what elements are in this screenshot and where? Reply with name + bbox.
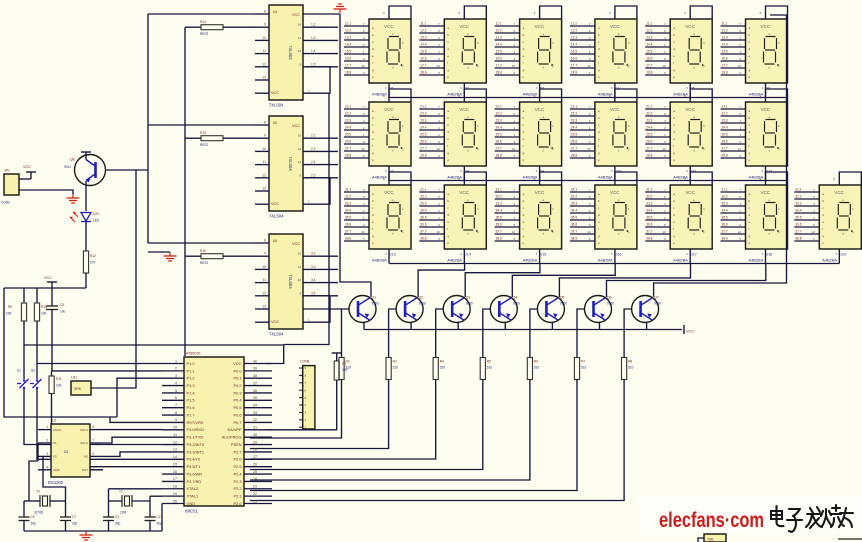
svg-text:23.3: 23.3 <box>345 119 351 123</box>
svg-text:4: 4 <box>175 381 177 385</box>
svg-text:33.3: 33.3 <box>795 202 801 206</box>
svg-text:VCC: VCC <box>459 24 469 29</box>
svg-text:26: 26 <box>253 462 257 466</box>
svg-text:10K: 10K <box>41 312 48 316</box>
svg-text:38.8: 38.8 <box>646 237 652 241</box>
svg-text:10: 10 <box>361 64 365 68</box>
svg-text:RES2: RES2 <box>200 143 209 147</box>
svg-text:28.8: 28.8 <box>571 154 577 158</box>
svg-text:C2: C2 <box>157 515 161 519</box>
svg-text:35.5: 35.5 <box>722 216 728 220</box>
svg-text:18.8: 18.8 <box>646 71 652 75</box>
svg-text:10: 10 <box>437 147 441 151</box>
svg-text:P3.4/T0: P3.4/T0 <box>187 457 201 462</box>
svg-text:10: 10 <box>587 147 591 151</box>
svg-text:10: 10 <box>738 147 742 151</box>
svg-text:3.4: 3.4 <box>311 278 316 282</box>
svg-text:32.2: 32.2 <box>571 195 577 199</box>
svg-text:22.2: 22.2 <box>420 112 426 116</box>
svg-text:2: 2 <box>46 439 48 443</box>
svg-text:13.3: 13.3 <box>722 36 728 40</box>
svg-text:3.3: 3.3 <box>311 265 316 269</box>
svg-text:14.4: 14.4 <box>420 43 426 47</box>
svg-text:P3.5/T1: P3.5/T1 <box>187 464 201 469</box>
svg-text:32.2: 32.2 <box>420 195 426 199</box>
svg-text:32768: 32768 <box>34 511 43 515</box>
svg-text:2.3: 2.3 <box>311 147 316 151</box>
svg-text:26.6: 26.6 <box>345 140 351 144</box>
svg-text:31.1: 31.1 <box>646 188 652 192</box>
svg-text:VCC: VCC <box>685 190 695 195</box>
svg-text:21.1: 21.1 <box>722 105 728 109</box>
svg-text:10: 10 <box>512 230 516 234</box>
svg-text:VCC: VCC <box>271 202 279 206</box>
svg-text:74LS04: 74LS04 <box>288 156 293 171</box>
svg-text:89C51: 89C51 <box>185 509 198 514</box>
svg-text:f: f <box>447 227 448 231</box>
svg-text:P2.6: P2.6 <box>233 457 241 462</box>
svg-text:23.3: 23.3 <box>571 119 577 123</box>
svg-text:VCC: VCC <box>535 24 545 29</box>
svg-text:28.8: 28.8 <box>420 154 426 158</box>
svg-text:R14: R14 <box>200 20 206 24</box>
svg-text:33.3: 33.3 <box>420 202 426 206</box>
svg-text:35.5: 35.5 <box>646 216 652 220</box>
svg-text:510: 510 <box>628 366 634 370</box>
svg-text:510: 510 <box>440 366 446 370</box>
svg-text:10K: 10K <box>342 368 349 372</box>
svg-text:37.7: 37.7 <box>496 230 502 234</box>
svg-text:P1.3: P1.3 <box>187 383 195 388</box>
svg-text:A4B2BA: A4B2BA <box>673 175 688 180</box>
svg-text:17.7: 17.7 <box>345 64 351 68</box>
svg-text:16: 16 <box>298 252 302 256</box>
svg-text:33.3: 33.3 <box>722 202 728 206</box>
svg-text:27.7: 27.7 <box>345 147 351 151</box>
svg-text:21: 21 <box>253 499 257 503</box>
svg-text:3: 3 <box>46 452 48 456</box>
svg-text:22.2: 22.2 <box>496 112 502 116</box>
svg-text:12: 12 <box>298 160 302 164</box>
svg-text:36.6: 36.6 <box>795 223 801 227</box>
svg-text:21.1: 21.1 <box>496 105 502 109</box>
svg-text:21.1: 21.1 <box>420 105 426 109</box>
svg-text:17.7: 17.7 <box>646 64 652 68</box>
svg-text:38.8: 38.8 <box>722 237 728 241</box>
svg-text:21.1: 21.1 <box>345 105 351 109</box>
svg-text:A4B2BA: A4B2BA <box>673 92 688 97</box>
svg-text:37: 37 <box>253 381 257 385</box>
svg-text:270: 270 <box>90 261 96 265</box>
svg-text:16: 16 <box>298 23 302 27</box>
svg-text:34.4: 34.4 <box>722 209 728 213</box>
svg-text:13: 13 <box>262 187 266 191</box>
svg-text:22.2: 22.2 <box>722 112 728 116</box>
svg-text:10K: 10K <box>6 312 13 316</box>
svg-text:10: 10 <box>262 265 266 269</box>
svg-text:17.7: 17.7 <box>420 64 426 68</box>
svg-text:31.1: 31.1 <box>496 188 502 192</box>
svg-text:26.6: 26.6 <box>420 140 426 144</box>
svg-text:9012: 9012 <box>64 165 71 169</box>
svg-text:9550: 9550 <box>560 302 567 306</box>
svg-text:SCLK: SCLK <box>80 441 88 445</box>
svg-text:28.8: 28.8 <box>345 154 351 158</box>
svg-text:18.8: 18.8 <box>571 71 577 75</box>
svg-text:25.5: 25.5 <box>571 133 577 137</box>
svg-text:17.7: 17.7 <box>571 64 577 68</box>
svg-text:25.5: 25.5 <box>345 133 351 137</box>
svg-text:CON2: CON2 <box>1 201 10 205</box>
svg-text:32.2: 32.2 <box>795 195 801 199</box>
svg-text:DS1302: DS1302 <box>48 480 64 485</box>
svg-text:U2: U2 <box>64 450 68 454</box>
svg-text:30p: 30p <box>115 522 121 526</box>
svg-text:D18: D18 <box>766 253 773 257</box>
svg-text:25.5: 25.5 <box>496 133 502 137</box>
svg-text:VCC: VCC <box>23 165 31 169</box>
svg-text:P2.4: P2.4 <box>233 471 242 476</box>
svg-text:17.7: 17.7 <box>722 64 728 68</box>
svg-text:VCC: VCC <box>610 24 620 29</box>
svg-text:3.5: 3.5 <box>311 291 316 295</box>
svg-text:6: 6 <box>93 452 95 456</box>
svg-text:30p: 30p <box>72 522 78 526</box>
svg-text:VCC: VCC <box>292 242 300 246</box>
svg-text:VCC1: VCC1 <box>80 428 88 432</box>
svg-text:8: 8 <box>93 425 95 429</box>
svg-text:10: 10 <box>173 426 177 430</box>
svg-text:P1.1: P1.1 <box>187 368 195 373</box>
svg-text:34.4: 34.4 <box>345 209 351 213</box>
svg-text:CON8: CON8 <box>300 360 310 364</box>
svg-text:16.6: 16.6 <box>496 57 502 61</box>
svg-text:VCC: VCC <box>535 190 545 195</box>
svg-text:P3.7/RD: P3.7/RD <box>187 479 202 484</box>
svg-text:1: 1 <box>175 359 177 363</box>
svg-text:19: 19 <box>173 492 177 496</box>
svg-text:D20: D20 <box>93 212 99 216</box>
svg-text:10: 10 <box>512 147 516 151</box>
svg-text:34.4: 34.4 <box>420 209 426 213</box>
svg-text:12M: 12M <box>120 511 127 515</box>
svg-text:33.3: 33.3 <box>571 202 577 206</box>
svg-text:f: f <box>447 61 448 65</box>
svg-text:510: 510 <box>393 366 399 370</box>
svg-text:9: 9 <box>264 134 266 138</box>
svg-text:15.5: 15.5 <box>722 50 728 54</box>
svg-text:12: 12 <box>173 440 177 444</box>
svg-text:21.1: 21.1 <box>571 105 577 109</box>
svg-text:A4B2BA: A4B2BA <box>523 258 538 263</box>
svg-text:35.5: 35.5 <box>420 216 426 220</box>
svg-text:VCC: VCC <box>685 24 695 29</box>
svg-text:12: 12 <box>262 291 266 295</box>
svg-text:R7: R7 <box>581 360 585 364</box>
svg-text:27: 27 <box>253 455 257 459</box>
svg-text:11: 11 <box>262 278 266 282</box>
svg-text:C7: C7 <box>72 515 76 519</box>
svg-text:P0.3: P0.3 <box>233 390 241 395</box>
svg-text:4: 4 <box>46 465 48 469</box>
svg-text:12: 12 <box>298 49 302 53</box>
svg-text:10K: 10K <box>56 384 63 388</box>
svg-text:36.6: 36.6 <box>646 223 652 227</box>
svg-text:23.3: 23.3 <box>496 119 502 123</box>
svg-text:18.8: 18.8 <box>420 71 426 75</box>
svg-text:S1: S1 <box>17 369 21 373</box>
svg-text:VCC: VCC <box>271 91 279 95</box>
svg-text:11.1: 11.1 <box>722 22 728 26</box>
svg-text:I/O: I/O <box>84 455 89 459</box>
svg-text:ALE/PROG: ALE/PROG <box>222 435 242 440</box>
svg-text:1.2: 1.2 <box>311 23 316 27</box>
svg-text:P3.3/INT1: P3.3/INT1 <box>187 449 205 454</box>
svg-text:10: 10 <box>663 64 667 68</box>
svg-text:GND: GND <box>53 468 61 472</box>
svg-text:15.5: 15.5 <box>420 50 426 54</box>
svg-text:28.8: 28.8 <box>722 154 728 158</box>
svg-text:8: 8 <box>264 121 266 125</box>
svg-text:31.1: 31.1 <box>795 188 801 192</box>
svg-text:GND: GND <box>187 501 196 506</box>
svg-text:32.2: 32.2 <box>345 195 351 199</box>
svg-text:38: 38 <box>253 374 257 378</box>
svg-text:32: 32 <box>253 418 257 422</box>
svg-text:A4B2BA: A4B2BA <box>598 258 613 263</box>
svg-text:VCC: VCC <box>384 107 394 112</box>
svg-text:14: 14 <box>298 147 302 151</box>
svg-text:10: 10 <box>812 230 816 234</box>
svg-text:26.6: 26.6 <box>571 140 577 144</box>
svg-text:23.3: 23.3 <box>646 119 652 123</box>
svg-text:11.1: 11.1 <box>345 22 351 26</box>
svg-text:JP1: JP1 <box>4 169 10 173</box>
svg-text:f: f <box>447 144 448 148</box>
svg-text:12: 12 <box>262 62 266 66</box>
svg-text:510: 510 <box>487 366 493 370</box>
svg-text:Q2: Q2 <box>419 296 424 300</box>
svg-text:VCC: VCC <box>761 107 771 112</box>
svg-text:12.2: 12.2 <box>345 29 351 33</box>
svg-text:14: 14 <box>173 455 177 459</box>
svg-text:VCC: VCC <box>459 190 469 195</box>
svg-text:37.7: 37.7 <box>646 230 652 234</box>
svg-text:33.3: 33.3 <box>646 202 652 206</box>
svg-text:R15: R15 <box>200 131 206 135</box>
svg-text:XTAL1: XTAL1 <box>187 494 199 499</box>
svg-text:13.3: 13.3 <box>571 36 577 40</box>
svg-text:R4: R4 <box>440 360 444 364</box>
svg-text:10: 10 <box>437 230 441 234</box>
svg-text:P1.5: P1.5 <box>187 398 195 403</box>
svg-text:10: 10 <box>361 230 365 234</box>
svg-text:VCC: VCC <box>459 107 469 112</box>
svg-text:8: 8 <box>264 239 266 243</box>
svg-text:16: 16 <box>173 470 177 474</box>
svg-text:P1.2: P1.2 <box>187 376 195 381</box>
svg-text:37.7: 37.7 <box>420 230 426 234</box>
svg-text:10: 10 <box>663 147 667 151</box>
svg-text:10: 10 <box>262 147 266 151</box>
svg-text:14.4: 14.4 <box>571 43 577 47</box>
svg-text:38.8: 38.8 <box>496 237 502 241</box>
svg-text:29: 29 <box>253 440 257 444</box>
svg-text:37.7: 37.7 <box>345 230 351 234</box>
svg-text:24.4: 24.4 <box>646 126 652 130</box>
svg-text:10: 10 <box>587 64 591 68</box>
svg-text:SPK: SPK <box>74 387 82 391</box>
svg-text:28.8: 28.8 <box>646 154 652 158</box>
svg-text:74LS04: 74LS04 <box>269 103 284 108</box>
svg-text:VCC: VCC <box>233 361 241 366</box>
svg-text:VCC: VCC <box>292 13 300 17</box>
svg-text:37.7: 37.7 <box>722 230 728 234</box>
svg-text:14.4: 14.4 <box>646 43 652 47</box>
svg-text:Q1: Q1 <box>372 296 377 300</box>
svg-text:D19: D19 <box>839 253 846 257</box>
svg-text:U6: U6 <box>273 239 277 243</box>
svg-text:1.5: 1.5 <box>311 62 316 66</box>
svg-text:38.8: 38.8 <box>420 237 426 241</box>
svg-text:9550: 9550 <box>513 302 520 306</box>
svg-text:38.8: 38.8 <box>345 237 351 241</box>
svg-text:26.6: 26.6 <box>496 140 502 144</box>
svg-text:Y2: Y2 <box>36 490 40 494</box>
svg-text:74LS04: 74LS04 <box>288 274 293 289</box>
svg-text:VCC: VCC <box>44 276 52 280</box>
svg-text:6: 6 <box>175 396 177 400</box>
svg-text:9: 9 <box>264 23 266 27</box>
svg-text:38.8: 38.8 <box>795 237 801 241</box>
svg-text:13.3: 13.3 <box>496 36 502 40</box>
svg-text:24.4: 24.4 <box>420 126 426 130</box>
svg-text:VCC: VCC <box>384 190 394 195</box>
svg-text:VCC: VCC <box>384 24 394 29</box>
svg-text:30p: 30p <box>31 522 37 526</box>
svg-text:32.2: 32.2 <box>722 195 728 199</box>
svg-text:D14: D14 <box>464 253 471 257</box>
svg-text:10: 10 <box>587 230 591 234</box>
svg-text:D15: D15 <box>540 253 547 257</box>
svg-text:P0.5: P0.5 <box>233 405 241 410</box>
svg-text:AT89C51: AT89C51 <box>186 352 201 356</box>
svg-text:U4: U4 <box>273 10 277 14</box>
svg-text:17.7: 17.7 <box>496 64 502 68</box>
svg-text:13: 13 <box>262 76 266 80</box>
svg-text:8: 8 <box>264 10 266 14</box>
svg-text:P2.3: P2.3 <box>233 479 241 484</box>
svg-text:34.4: 34.4 <box>571 209 577 213</box>
svg-text:A4B2BA: A4B2BA <box>523 92 538 97</box>
svg-text:510: 510 <box>534 366 540 370</box>
svg-text:VCC: VCC <box>271 320 279 324</box>
svg-text:A4B2BA: A4B2BA <box>447 175 462 180</box>
svg-text:13: 13 <box>262 305 266 309</box>
svg-text:R12: R12 <box>90 254 96 258</box>
svg-text:23.3: 23.3 <box>722 119 728 123</box>
svg-text:R6: R6 <box>534 360 538 364</box>
svg-text:12.2: 12.2 <box>496 29 502 33</box>
svg-text:10u: 10u <box>60 310 66 314</box>
svg-text:10: 10 <box>512 64 516 68</box>
svg-text:31.1: 31.1 <box>420 188 426 192</box>
svg-text:25: 25 <box>253 470 257 474</box>
svg-text:EA/VPP: EA/VPP <box>227 427 241 432</box>
svg-text:13: 13 <box>173 448 177 452</box>
svg-text:15: 15 <box>173 462 177 466</box>
svg-text:34: 34 <box>253 404 257 408</box>
svg-text:31.1: 31.1 <box>722 188 728 192</box>
svg-text:X2: X2 <box>53 455 57 459</box>
svg-text:31.1: 31.1 <box>345 188 351 192</box>
svg-text:24.4: 24.4 <box>496 126 502 130</box>
svg-text:11: 11 <box>262 49 266 53</box>
svg-text:28.8: 28.8 <box>496 154 502 158</box>
svg-text:VCC: VCC <box>535 107 545 112</box>
svg-text:A4B2BA: A4B2BA <box>673 258 688 263</box>
svg-text:27.7: 27.7 <box>722 147 728 151</box>
svg-text:36.6: 36.6 <box>345 223 351 227</box>
svg-text:33: 33 <box>253 411 257 415</box>
svg-text:P0.1: P0.1 <box>233 376 241 381</box>
svg-text:11.1: 11.1 <box>496 22 502 26</box>
svg-text:D13: D13 <box>389 253 396 257</box>
svg-text:16: 16 <box>298 134 302 138</box>
svg-text:23.3: 23.3 <box>420 119 426 123</box>
svg-text:33.3: 33.3 <box>345 202 351 206</box>
svg-text:30p: 30p <box>157 522 163 526</box>
svg-text:f: f <box>822 227 823 231</box>
svg-text:36.6: 36.6 <box>420 223 426 227</box>
svg-text:12: 12 <box>298 278 302 282</box>
svg-text:10: 10 <box>663 230 667 234</box>
svg-text:P1.6: P1.6 <box>187 405 195 410</box>
svg-text:40: 40 <box>253 359 257 363</box>
svg-text:14: 14 <box>298 36 302 40</box>
svg-text:R9: R9 <box>8 305 12 309</box>
svg-text:9: 9 <box>175 418 177 422</box>
svg-text:34.4: 34.4 <box>795 209 801 213</box>
svg-text:U2: U2 <box>52 419 56 423</box>
svg-text:10: 10 <box>437 64 441 68</box>
svg-text:10: 10 <box>262 36 266 40</box>
svg-text:13.3: 13.3 <box>646 36 652 40</box>
svg-text:25.5: 25.5 <box>646 133 652 137</box>
svg-text:27.7: 27.7 <box>646 147 652 151</box>
svg-text:RST/VPD: RST/VPD <box>187 420 204 425</box>
svg-text:A4B2BA: A4B2BA <box>447 258 462 263</box>
svg-text:9550: 9550 <box>419 302 426 306</box>
svg-text:39: 39 <box>253 367 257 371</box>
svg-text:P1.7: P1.7 <box>187 412 195 417</box>
svg-text:15.5: 15.5 <box>345 50 351 54</box>
svg-text:Q4: Q4 <box>513 296 518 300</box>
svg-text:P0.2: P0.2 <box>233 383 241 388</box>
svg-text:20: 20 <box>173 499 177 503</box>
svg-text:1: 1 <box>46 425 48 429</box>
svg-text:11.1: 11.1 <box>571 22 577 26</box>
svg-text:P2.7: P2.7 <box>233 449 241 454</box>
svg-text:VCC: VCC <box>686 329 695 334</box>
svg-text:11.1: 11.1 <box>646 22 652 26</box>
svg-text:A4B2BA: A4B2BA <box>749 175 764 180</box>
svg-text:22.2: 22.2 <box>345 112 351 116</box>
svg-text:R3: R3 <box>393 360 397 364</box>
svg-text:26.6: 26.6 <box>722 140 728 144</box>
svg-text:P0.4: P0.4 <box>233 398 242 403</box>
svg-text:9550: 9550 <box>372 302 379 306</box>
